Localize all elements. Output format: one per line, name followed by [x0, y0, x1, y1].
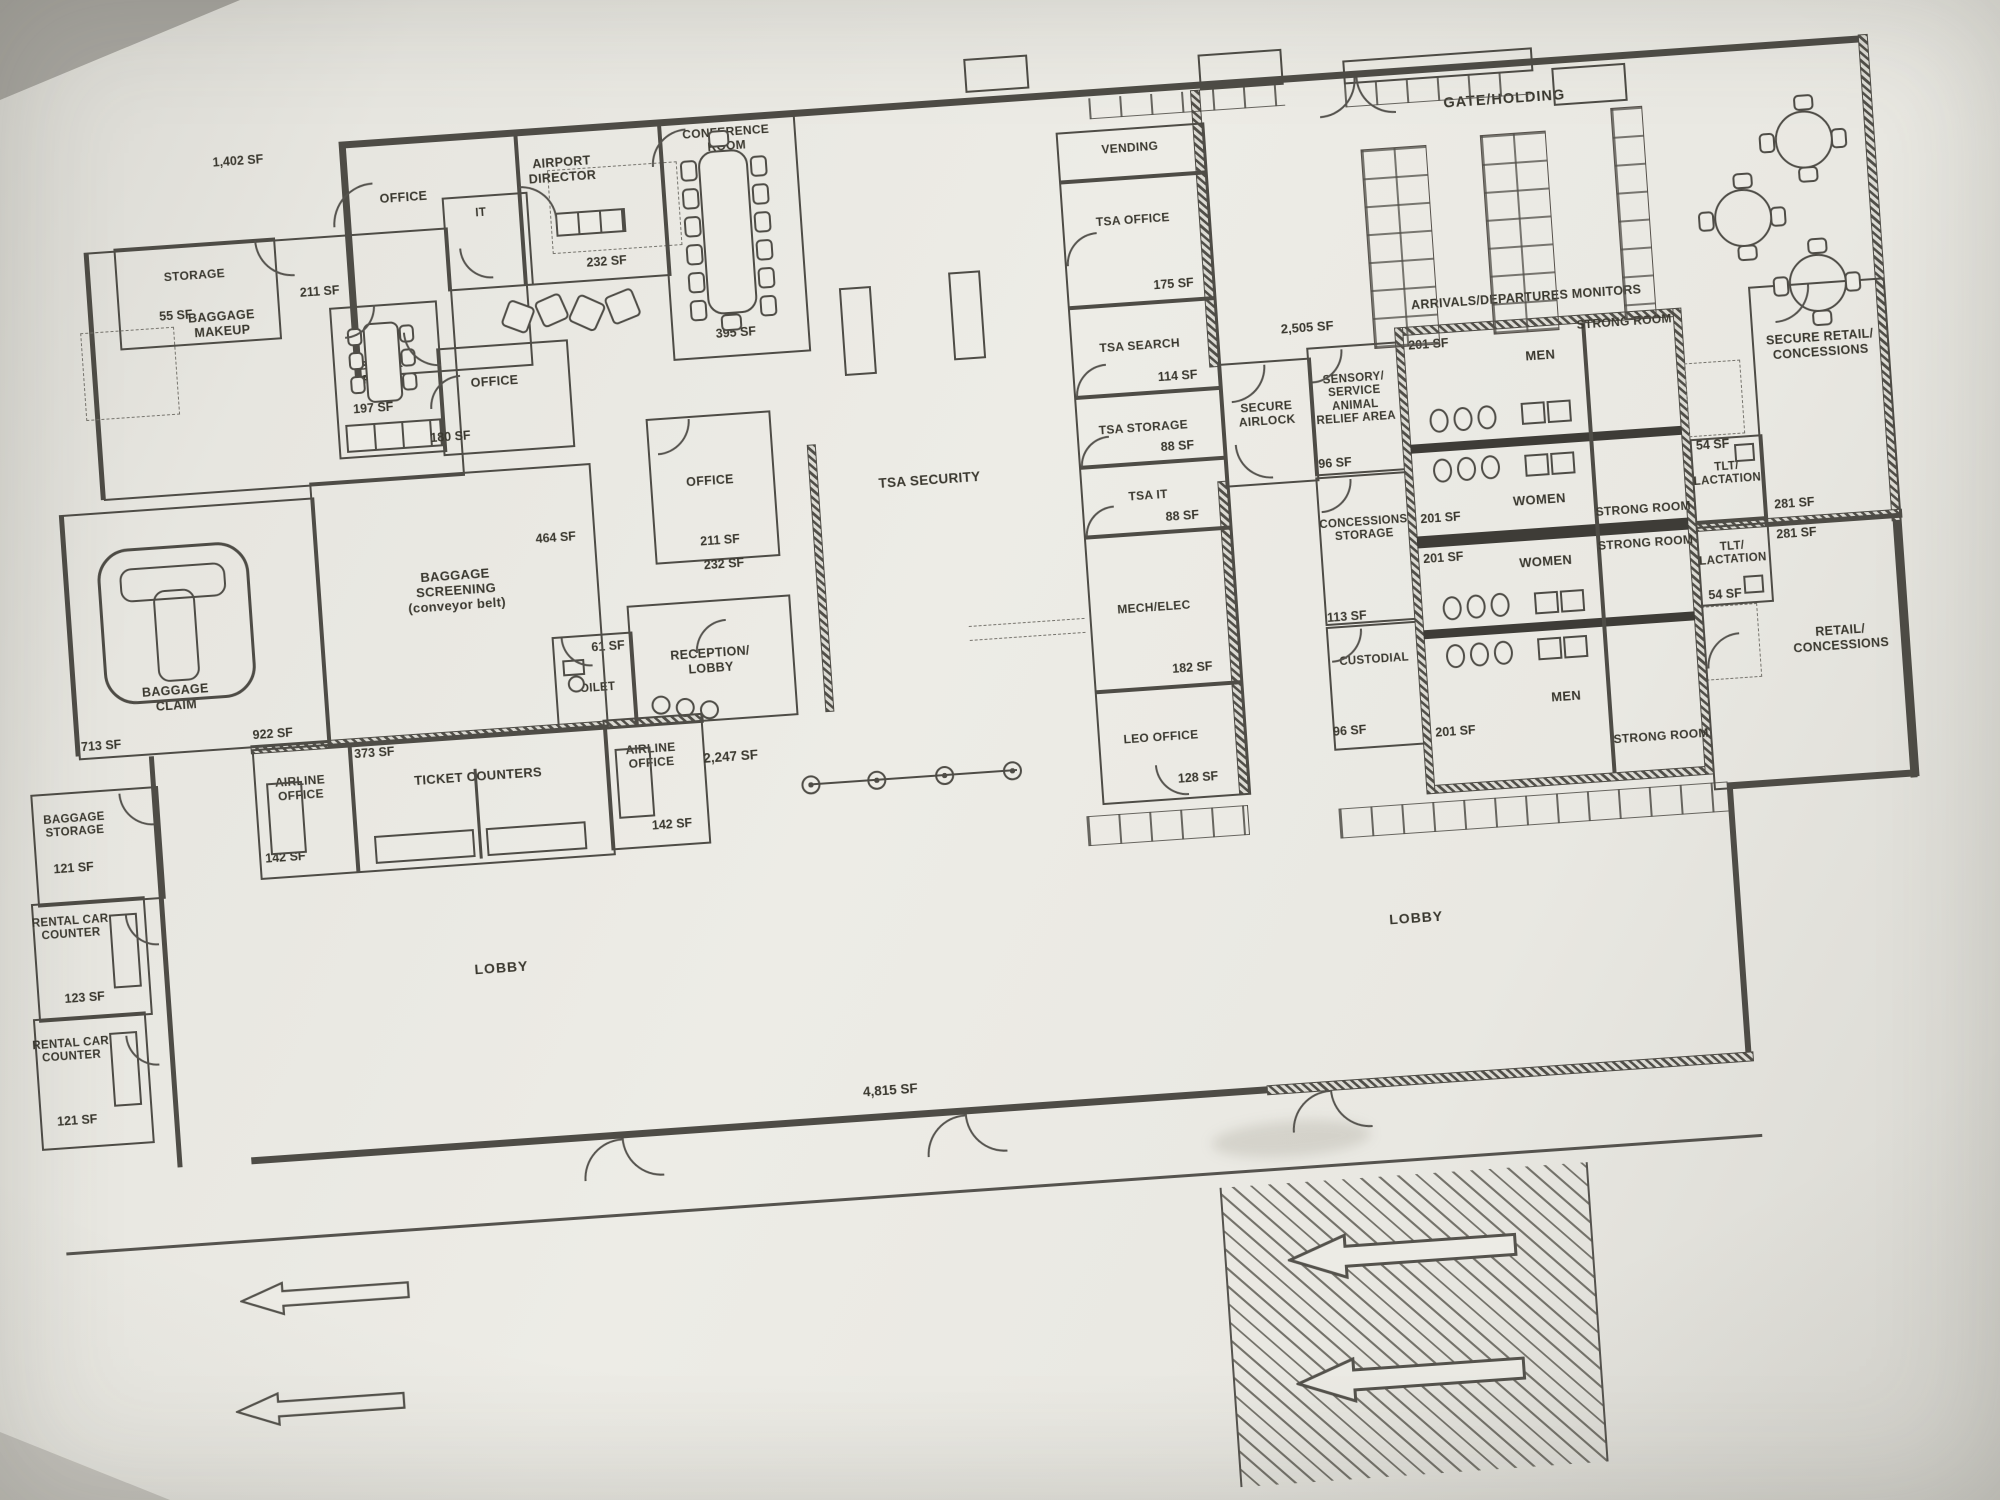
door-arc [1355, 75, 1396, 116]
toilet-stall [1550, 451, 1575, 475]
secure-wall [1268, 1052, 1753, 1094]
chair [1812, 309, 1833, 326]
lavatory [1432, 458, 1453, 483]
chair [757, 267, 775, 289]
dashed-opening [80, 327, 180, 421]
lavatory [1493, 640, 1514, 665]
break-table [362, 321, 403, 403]
sf-label: 373 SF [354, 744, 395, 761]
room-label-men: MEN [1505, 345, 1576, 365]
chair [402, 372, 418, 391]
credenza [555, 208, 627, 237]
column-marker [934, 765, 954, 785]
chair [1798, 166, 1819, 183]
room-label: SECURE AIRLOCK [1224, 398, 1310, 432]
lavatory [1466, 594, 1487, 619]
direction-arrow-left [239, 1269, 412, 1323]
lavatory [1445, 643, 1466, 668]
chair [603, 287, 642, 326]
lavatory [1429, 408, 1450, 433]
column-marker [801, 775, 821, 795]
chair [749, 155, 767, 177]
toilet-stall [1563, 635, 1588, 659]
desk [614, 747, 655, 819]
sf-label: 123 SF [64, 989, 105, 1006]
sf-label: 96 SF [1318, 455, 1352, 471]
chair [755, 239, 773, 261]
sf-label: 96 SF [1333, 723, 1367, 739]
door-arc [965, 1112, 1008, 1155]
direction-arrow-left [234, 1379, 407, 1433]
room-label: TLT/ LACTATION [1687, 458, 1767, 490]
door-arc [1290, 1090, 1333, 1133]
lavatory [1480, 455, 1501, 480]
toilet-stall [1521, 401, 1546, 425]
sf-label: 88 SF [1165, 508, 1199, 524]
chair [1698, 211, 1715, 232]
sf-label: 211 SF [700, 532, 741, 549]
column-line [811, 769, 1017, 785]
sf-label: 2,505 SF [1280, 318, 1334, 337]
sf-label: 4,815 SF [862, 1081, 918, 1100]
dashed-opening [1684, 360, 1745, 438]
toilet-stall [1560, 589, 1585, 613]
wall [1410, 426, 1682, 454]
chair [684, 216, 702, 238]
sf-label: 1,402 SF [212, 152, 264, 170]
lavatory [1442, 596, 1463, 621]
sf-label: 2,247 SF [703, 747, 759, 766]
round-table [1712, 187, 1774, 249]
round-table [1773, 109, 1835, 171]
sf-label: 713 SF [81, 737, 122, 754]
room-label: BAGGAGE STORAGE [36, 810, 114, 842]
room-label: IT [460, 206, 501, 222]
kiosk [1551, 63, 1627, 106]
sf-label: 182 SF [1172, 659, 1213, 676]
room-label-women: WOMEN [1489, 488, 1590, 510]
wall [1423, 611, 1695, 639]
screening-lane [948, 270, 986, 360]
sf-label: 121 SF [57, 1112, 98, 1129]
chair [1769, 206, 1786, 227]
toilet-stall [1534, 591, 1559, 615]
toilet-stall [1546, 399, 1571, 423]
area-label-tsa-security: TSA SECURITY [849, 467, 1010, 494]
sf-label: 54 SF [1695, 437, 1729, 453]
baggage-carousel-belt [152, 588, 200, 683]
room-label-strong-room: STRONG ROOM [1592, 533, 1699, 554]
floor-plan-photo: STORAGE 55 SF BAGGAGE MAKEUP 1,402 SF OF… [0, 0, 2000, 1500]
sf-label: 201 SF [1435, 723, 1476, 740]
door-arc [925, 1114, 968, 1157]
wall [1727, 782, 1752, 1060]
sf-label: 281 SF [1774, 495, 1815, 512]
chair [1807, 237, 1828, 254]
sf-label: 201 SF [1423, 549, 1464, 566]
chair [1758, 133, 1775, 154]
door-arc [582, 1138, 625, 1181]
room-label-women: WOMEN [1495, 550, 1596, 572]
wall [251, 1086, 1279, 1165]
sf-label: 88 SF [1160, 438, 1194, 454]
sf-label: 113 SF [1327, 608, 1368, 625]
chair [1732, 172, 1753, 189]
sf-label: 211 SF [299, 283, 340, 300]
room-label-strong-room: STRONG ROOM [1608, 726, 1715, 747]
chair-row [1086, 805, 1250, 846]
lavatory [1490, 592, 1511, 617]
sf-label: 232 SF [586, 253, 627, 270]
chair [689, 300, 707, 322]
vestibule [963, 55, 1029, 93]
chair [1737, 244, 1758, 261]
chair [1793, 94, 1814, 111]
lavatory [1456, 456, 1477, 481]
chair [759, 295, 777, 317]
gate-seating [1360, 145, 1440, 349]
secure-wall [808, 445, 834, 711]
sf-label: 121 SF [53, 860, 94, 877]
vestibule [1197, 49, 1283, 91]
screening-lane [839, 286, 877, 376]
lavatory [1469, 642, 1490, 667]
smudge [1210, 1115, 1372, 1162]
door-arc [330, 183, 375, 228]
area-label-lobby: LOBBY [451, 956, 552, 979]
chair [348, 352, 364, 371]
chair [567, 293, 607, 333]
chair [685, 244, 703, 266]
door-arc [622, 1136, 665, 1179]
chair [720, 313, 742, 331]
chair [708, 130, 730, 148]
chair [682, 188, 700, 210]
chair-row [1338, 781, 1729, 838]
sf-label: 175 SF [1153, 275, 1194, 292]
sf-label: 201 SF [1420, 509, 1461, 526]
toilet-stall [1537, 637, 1562, 661]
chair [350, 376, 366, 395]
sf-label: 232 SF [703, 556, 744, 573]
chair [533, 292, 570, 329]
chair [1830, 128, 1847, 149]
area-label-lobby: LOBBY [1366, 906, 1467, 929]
crosswalk-hatch [1220, 1162, 1609, 1487]
sink [1734, 443, 1755, 462]
sf-label: 180 SF [430, 428, 471, 445]
chair [1844, 271, 1861, 292]
toilet-stall [1524, 453, 1549, 477]
lavatory [1453, 406, 1474, 431]
gate-seating [1480, 131, 1560, 335]
lavatory [1477, 405, 1498, 430]
floor-plan: STORAGE 55 SF BAGGAGE MAKEUP 1,402 SF OF… [0, 0, 2000, 1500]
desk [266, 781, 307, 855]
room-label-men: MEN [1531, 686, 1602, 706]
sf-label: 114 SF [1157, 367, 1198, 384]
chair [751, 183, 769, 205]
queue-line [970, 632, 1086, 641]
queue-line [969, 618, 1085, 627]
column-marker [867, 770, 887, 790]
column-marker [1002, 761, 1022, 781]
chair [687, 272, 705, 294]
chair [753, 211, 771, 233]
sf-label: 281 SF [1776, 525, 1817, 542]
sf-label: 142 SF [651, 816, 692, 833]
